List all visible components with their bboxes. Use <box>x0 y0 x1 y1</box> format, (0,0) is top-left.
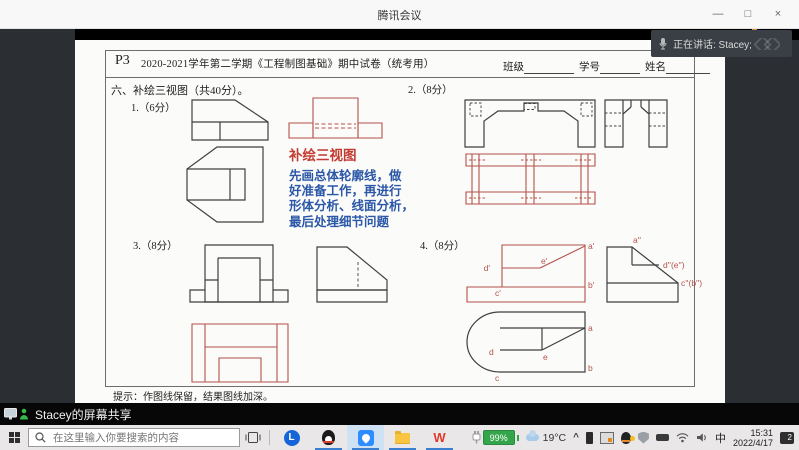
battery-status[interactable]: 99% <box>472 430 519 445</box>
viewer-right-margin <box>725 40 799 403</box>
problem-3-given-views <box>190 245 387 302</box>
qq-penguin-icon <box>322 430 335 445</box>
problem-4-answer-view <box>467 245 585 302</box>
task-view-button[interactable] <box>240 425 266 450</box>
start-button[interactable] <box>0 425 28 450</box>
problem-1-given-views <box>187 100 268 222</box>
temperature-label: 19°C <box>543 432 566 444</box>
taskbar-app-explorer[interactable] <box>384 425 421 450</box>
hidden-icons-chevron[interactable]: ^ <box>573 432 579 443</box>
label-c: c <box>495 373 500 383</box>
search-input[interactable] <box>51 431 233 445</box>
wps-office-icon: W <box>433 430 445 445</box>
window-controls: — □ × <box>703 0 793 28</box>
label-a: a <box>588 323 593 333</box>
viewer-left-margin <box>0 28 75 403</box>
taskbar-app-wps[interactable]: W <box>421 425 458 450</box>
browser-icon: L <box>284 430 300 446</box>
shield-icon <box>638 432 649 444</box>
taskbar-app-browser[interactable]: L <box>273 425 310 450</box>
speaking-label: 正在讲话: Stacey; <box>673 36 752 51</box>
security-shield-tray[interactable] <box>638 432 649 444</box>
share-owner-label: Stacey的屏幕共享 <box>35 406 132 423</box>
app-titlebar: 腾讯会议 — □ × <box>0 0 799 29</box>
taskbar-clock[interactable]: 15:31 2022/4/17 <box>733 428 773 448</box>
label-a-dblprime: a'' <box>633 235 641 245</box>
label-d: d <box>489 347 494 357</box>
label-b-prime: b' <box>588 280 595 290</box>
clock-time: 15:31 <box>733 428 773 438</box>
label-a-prime: a' <box>588 241 595 251</box>
problem-3-answer-view <box>192 324 288 382</box>
shared-screen-icon <box>4 408 17 420</box>
label-b: b <box>588 363 593 373</box>
wifi-icon[interactable] <box>676 432 689 443</box>
tencent-meeting-icon <box>358 430 374 446</box>
problem-2-answer-view <box>466 154 595 204</box>
taskbar-app-meeting[interactable] <box>347 425 384 450</box>
task-view-icon <box>245 431 261 444</box>
screen-cast-tray-icon[interactable] <box>600 432 614 444</box>
battery-nub <box>517 435 519 441</box>
window-title: 腾讯会议 <box>0 7 799 23</box>
device-tray-icon[interactable] <box>656 434 669 441</box>
restore-button[interactable]: □ <box>733 8 763 20</box>
taskbar-separator <box>269 430 270 445</box>
close-button[interactable]: × <box>763 8 793 20</box>
problem-2-given-views <box>465 100 667 147</box>
system-tray: 99% 19°C ^ 中 15:31 2022/4/17 2 <box>472 428 799 448</box>
clock-date: 2022/4/17 <box>733 438 773 448</box>
label-de-dblprime: d''(e'') <box>663 260 685 270</box>
label-cb-dblprime: c''(b'') <box>681 278 702 288</box>
label-c-prime: c' <box>495 288 501 298</box>
ime-indicator[interactable]: 中 <box>715 430 726 446</box>
minimize-button[interactable]: — <box>703 8 733 20</box>
problem-4-given-views <box>467 247 678 372</box>
presenter-person-icon <box>19 408 29 420</box>
cloud-icon <box>526 434 539 441</box>
file-explorer-icon <box>395 433 410 444</box>
label-e: e <box>543 352 548 362</box>
shield-alert-dot <box>630 436 635 441</box>
share-status-bar: Stacey的屏幕共享 <box>0 403 799 425</box>
speaking-toast: 正在讲话: Stacey; <box>651 30 792 57</box>
meeting-watermark-icon <box>754 38 780 50</box>
mic-icon <box>659 38 667 50</box>
taskbar-search[interactable] <box>28 428 240 447</box>
power-plug-icon <box>472 431 481 444</box>
problem-1-answer-view <box>289 98 382 138</box>
taskbar-app-qq[interactable] <box>310 425 347 450</box>
problem-4-point-labels: a' e' d' b' c' a'' d''(e'') c''(b'') a b… <box>484 235 703 383</box>
weather-widget[interactable]: 19°C <box>526 432 566 444</box>
orthographic-views-drawing: a' e' d' b' c' a'' d''(e'') c''(b'') a b… <box>75 40 725 403</box>
search-icon <box>35 432 46 443</box>
windows-taskbar: L W 99% 19°C ^ <box>0 425 799 450</box>
screen-share-viewport: P3 2020-2021学年第二学期《工程制图基础》期中试卷（统考用） 班级 学… <box>0 28 799 403</box>
volume-icon[interactable] <box>696 432 708 443</box>
battery-percent: 99% <box>483 430 515 445</box>
phone-tray-icon[interactable] <box>586 432 593 444</box>
notification-count: 2 <box>788 433 792 442</box>
exam-sheet-page: P3 2020-2021学年第二学期《工程制图基础》期中试卷（统考用） 班级 学… <box>75 40 725 403</box>
windows-logo-icon <box>9 432 20 443</box>
notification-center-button[interactable]: 2 <box>780 432 794 444</box>
label-d-prime: d' <box>484 263 491 273</box>
label-e-prime: e' <box>541 256 548 266</box>
